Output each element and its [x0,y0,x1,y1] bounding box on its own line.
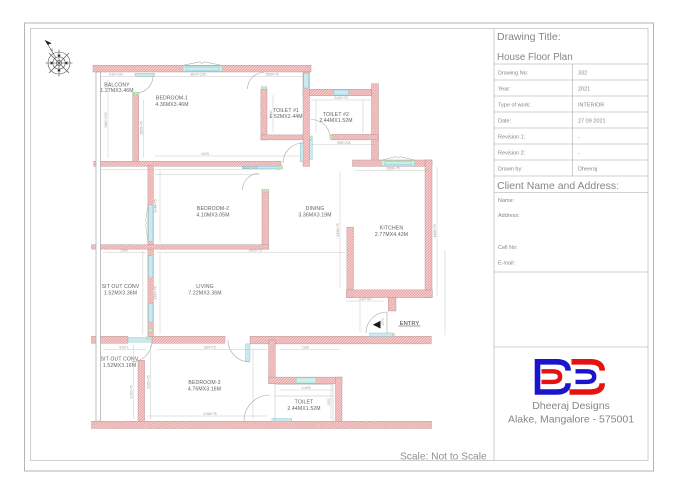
svg-text:Revision 2:: Revision 2: [498,151,526,157]
svg-text:Name:: Name: [498,198,515,204]
svg-text:INTERIOR: INTERIOR [578,103,604,109]
svg-text:1=600: 1=600 [301,386,311,390]
svg-text:1060+75: 1060+75 [265,73,278,77]
svg-text:2.44MX1.52M: 2.44MX1.52M [287,406,320,412]
svg-text:E-mail:: E-mail: [498,261,516,267]
svg-text:898+230: 898+230 [337,141,350,145]
svg-text:Cell No:: Cell No: [498,245,518,251]
svg-text:332: 332 [578,71,587,77]
svg-text:Revision 1:: Revision 1: [498,135,526,141]
svg-text:4.36MX3.46M: 4.36MX3.46M [155,102,188,108]
svg-text:KITCHEN: KITCHEN [380,226,404,232]
svg-text:1070: 1070 [381,318,385,326]
svg-text:Dheeraj: Dheeraj [578,167,597,173]
svg-text:3360+75: 3360+75 [154,286,158,299]
svg-text:BEDROOM-3: BEDROOM-3 [188,380,220,386]
svg-text:Drawing No:: Drawing No: [498,71,529,77]
svg-text:Client Name and Address:: Client Name and Address: [497,180,619,192]
svg-text:3460+230: 3460+230 [104,112,108,127]
svg-text:SIT OUT CONV: SIT OUT CONV [102,284,140,290]
svg-text:910+230: 910+230 [109,73,122,77]
svg-text:2021: 2021 [578,87,590,93]
svg-text:3848+230: 3848+230 [242,166,257,170]
svg-text:2896+75: 2896+75 [386,167,399,171]
svg-text:1520: 1520 [327,398,331,406]
svg-text:910+1: 910+1 [119,345,129,349]
svg-text:1.52MX2.44M: 1.52MX2.44M [269,114,302,120]
svg-text:2.77MX4.43M: 2.77MX4.43M [375,232,408,238]
svg-text:4436+75: 4436+75 [336,223,340,236]
svg-text:1.27MX3.46M: 1.27MX3.46M [100,88,133,94]
svg-text:DINING: DINING [306,206,325,212]
svg-text:4.76MX3.16M: 4.76MX3.16M [188,387,221,393]
svg-text:4415: 4415 [201,152,209,156]
svg-text:3810+230: 3810+230 [190,73,205,77]
svg-text:SIT OUT CONV: SIT OUT CONV [101,357,139,363]
svg-text:4.10MX3.05M: 4.10MX3.05M [196,213,229,219]
svg-text:3160+75: 3160+75 [147,375,151,388]
svg-text:7.22MX3.36M: 7.22MX3.36M [188,291,221,297]
svg-text:Dheeraj Designs: Dheeraj Designs [532,400,610,412]
svg-text:Alake, Mangalore - 575001: Alake, Mangalore - 575001 [508,414,634,426]
svg-text:916+417: 916+417 [359,297,372,301]
svg-text:Year:: Year: [498,87,511,93]
svg-text:1.52MX3.16M: 1.52MX3.16M [103,363,136,369]
svg-text:Scale: Not to Scale: Scale: Not to Scale [400,452,487,463]
svg-text:N: N [51,48,54,52]
svg-text:2440+75: 2440+75 [334,96,347,100]
svg-text:Drawing Title:: Drawing Title: [497,31,561,43]
svg-text:-: - [578,151,580,157]
svg-text:3.36MX3.19M: 3.36MX3.19M [298,213,331,219]
svg-text:1060: 1060 [120,249,128,253]
svg-text:664+75: 664+75 [204,345,216,349]
svg-text:1.52MX3.36M: 1.52MX3.36M [104,291,137,297]
svg-text:4766+75: 4766+75 [203,412,216,416]
svg-text:2.44MX1.52M: 2.44MX1.52M [319,118,352,124]
svg-text:27 09 2021: 27 09 2021 [578,119,606,125]
svg-text:4436+75: 4436+75 [433,224,437,237]
svg-text:7160: 7160 [301,345,309,349]
svg-text:House Floor Plan: House Floor Plan [497,52,573,63]
svg-text:3048+75: 3048+75 [154,199,158,212]
svg-text:Type of work:: Type of work: [498,103,531,109]
svg-text:BEDROOM-1: BEDROOM-1 [156,96,188,102]
svg-text:3960+75: 3960+75 [248,249,261,253]
svg-text:-: - [578,135,580,141]
svg-text:Date:: Date: [498,119,512,125]
svg-text:LIVING: LIVING [196,284,214,290]
svg-text:2855+75: 2855+75 [140,121,144,134]
svg-text:TOILET: TOILET [295,400,314,406]
svg-text:Address:: Address: [498,213,520,219]
svg-text:BEDROOM-2: BEDROOM-2 [197,206,229,212]
svg-text:Drawn by:: Drawn by: [498,167,523,173]
svg-text:2440: 2440 [269,110,273,118]
svg-text:3162+75: 3162+75 [130,385,134,398]
